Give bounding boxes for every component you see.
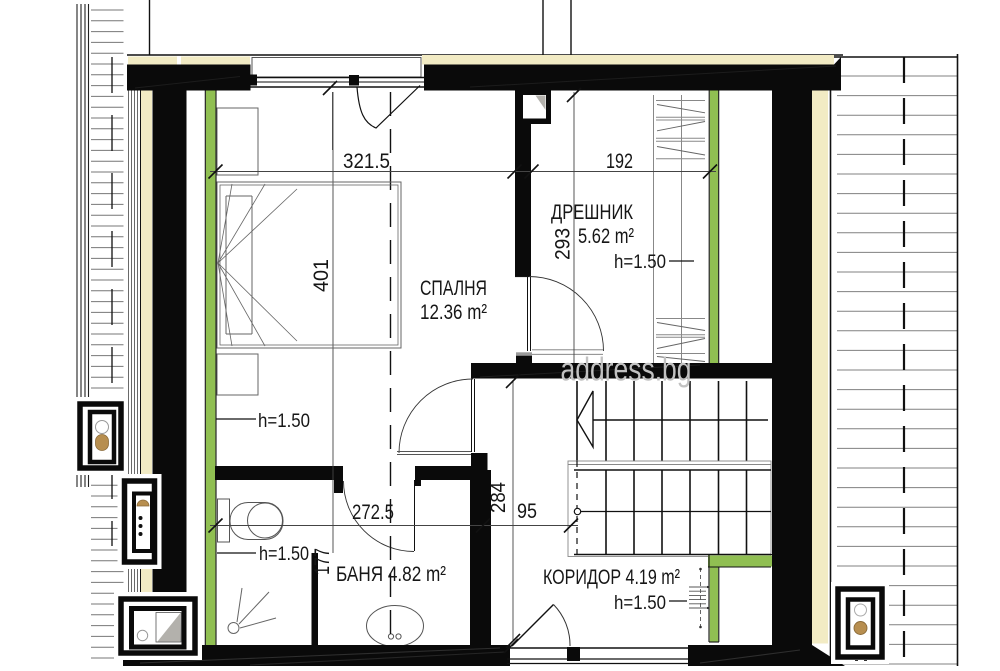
svg-text:address.bg: address.bg [561, 351, 692, 388]
svg-text:h=1.50: h=1.50 [259, 544, 309, 565]
svg-text:272.5: 272.5 [352, 501, 394, 524]
svg-text:192: 192 [606, 150, 633, 173]
svg-text:177: 177 [311, 548, 334, 575]
svg-text:321.5: 321.5 [343, 150, 390, 173]
svg-text:h=1.50: h=1.50 [614, 252, 666, 273]
svg-text:284: 284 [487, 482, 510, 513]
svg-text:h=1.50: h=1.50 [258, 411, 310, 432]
svg-text:ДРЕШНИК: ДРЕШНИК [551, 201, 634, 224]
svg-text:95: 95 [517, 500, 537, 523]
svg-text:h=1.50: h=1.50 [614, 593, 666, 614]
svg-text:293: 293 [552, 228, 575, 260]
svg-text:БАНЯ 4.82 m²: БАНЯ 4.82 m² [336, 563, 446, 586]
svg-text:12.36 m²: 12.36 m² [420, 301, 487, 324]
svg-text:КОРИДОР 4.19 m²: КОРИДОР 4.19 m² [543, 566, 680, 589]
svg-text:5.62 m²: 5.62 m² [578, 225, 634, 248]
svg-text:СПАЛНЯ: СПАЛНЯ [420, 277, 487, 300]
svg-text:401: 401 [310, 259, 333, 292]
